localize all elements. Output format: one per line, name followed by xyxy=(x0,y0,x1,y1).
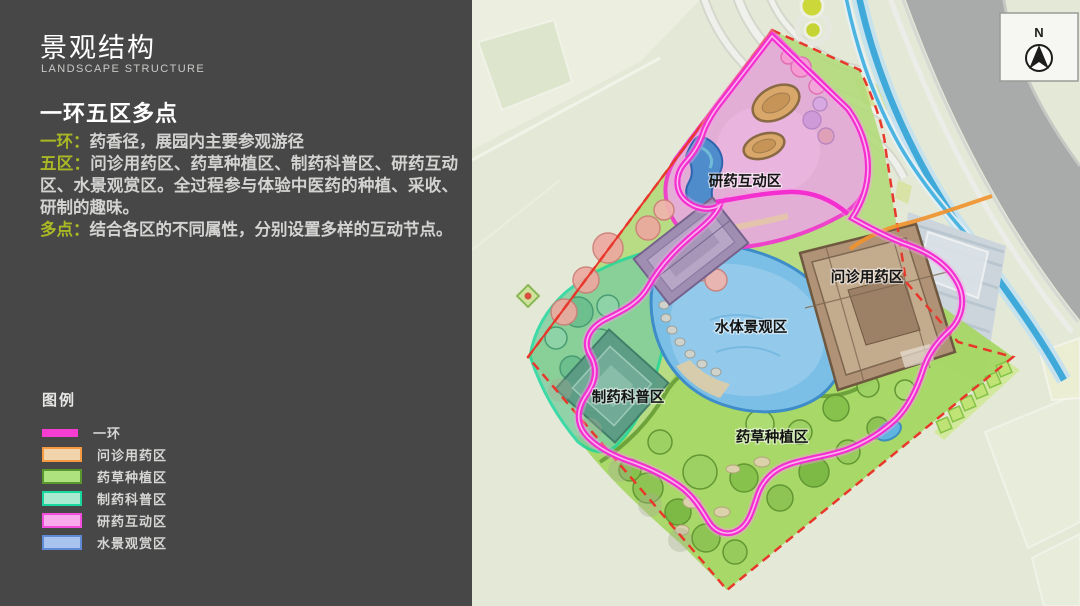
left-panel: 景观结构 LANDSCAPE STRUCTURE 一环五区多点 一环：药香径，展… xyxy=(0,0,472,606)
page-title: 景观结构 xyxy=(40,26,156,65)
map-label-science: 制药科普区 xyxy=(592,388,665,406)
legend-item-label: 一环 xyxy=(93,423,121,442)
paragraph-zones-label: 五区： xyxy=(40,155,90,173)
description-block: 一环：药香径，展园内主要参观游径 五区：问诊用药区、药草种植区、制药科普区、研药… xyxy=(40,131,458,241)
north-arrow: N xyxy=(1000,13,1078,81)
paragraph-zones: 五区：问诊用药区、药草种植区、制药科普区、研药互动区、水景观赏区。全过程参与体验… xyxy=(40,153,458,219)
paragraph-ring: 一环：药香径，展园内主要参观游径 xyxy=(40,131,458,153)
map-label-clinic: 问诊用药区 xyxy=(831,268,904,286)
legend-swatch-water-icon xyxy=(42,535,82,550)
paragraph-points-label: 多点： xyxy=(40,221,90,239)
legend-swatch-ring-icon xyxy=(42,429,78,437)
legend-item-label: 制药科普区 xyxy=(97,489,167,508)
legend-item-label: 问诊用药区 xyxy=(97,445,167,464)
legend-item-label: 药草种植区 xyxy=(97,467,167,486)
legend-item-water: 水景观赏区 xyxy=(42,531,167,553)
section-heading: 一环五区多点 xyxy=(40,96,178,128)
map-label-water: 水体景观区 xyxy=(715,318,788,336)
slide: 景观结构 LANDSCAPE STRUCTURE 一环五区多点 一环：药香径，展… xyxy=(0,0,1080,606)
legend-item-research: 研药互动区 xyxy=(42,509,167,531)
paragraph-points-text: 结合各区的不同属性，分别设置多样的互动节点。 xyxy=(90,221,453,239)
legend-item-label: 研药互动区 xyxy=(97,511,167,530)
legend-swatch-clinic-icon xyxy=(42,447,82,462)
legend-item-science: 制药科普区 xyxy=(42,487,167,509)
site-plan-svg: 研药互动区 问诊用药区 水体景观区 制药科普区 药草种植区 N xyxy=(472,0,1080,606)
paragraph-ring-label: 一环： xyxy=(40,133,90,151)
legend: 图例 一环 问诊用药区 药草种植区 制药科普区 xyxy=(42,389,167,553)
page-subtitle: LANDSCAPE STRUCTURE xyxy=(41,63,205,75)
legend-item-herb: 药草种植区 xyxy=(42,465,167,487)
legend-swatch-science-icon xyxy=(42,491,82,506)
legend-swatch-research-icon xyxy=(42,513,82,528)
paragraph-points: 多点：结合各区的不同属性，分别设置多样的互动节点。 xyxy=(40,219,458,241)
map-label-herb: 药草种植区 xyxy=(736,428,809,446)
site-plan-map: 研药互动区 问诊用药区 水体景观区 制药科普区 药草种植区 N xyxy=(472,0,1080,606)
legend-items: 一环 问诊用药区 药草种植区 制药科普区 研药互动区 xyxy=(42,421,167,553)
legend-swatch-herb-icon xyxy=(42,469,82,484)
legend-item-ring: 一环 xyxy=(42,421,167,443)
map-label-research: 研药互动区 xyxy=(709,172,782,190)
legend-title: 图例 xyxy=(42,389,167,410)
paragraph-ring-text: 药香径，展园内主要参观游径 xyxy=(90,133,305,151)
paragraph-zones-text: 问诊用药区、药草种植区、制药科普区、研药互动区、水景观赏区。全过程参与体验中医药… xyxy=(40,155,458,217)
legend-item-clinic: 问诊用药区 xyxy=(42,443,167,465)
legend-item-label: 水景观赏区 xyxy=(97,533,167,552)
north-label: N xyxy=(1034,25,1043,40)
